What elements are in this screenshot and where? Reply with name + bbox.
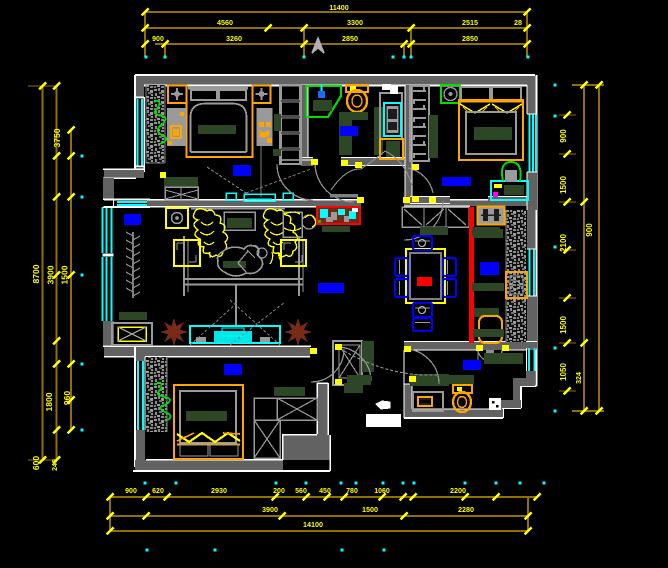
svg-text:900: 900 [559,129,568,143]
svg-text:28: 28 [514,18,522,27]
svg-text:560: 560 [295,488,307,495]
svg-text:3300: 3300 [347,18,363,27]
svg-text:2850: 2850 [462,34,478,43]
svg-text:14100: 14100 [303,520,323,529]
svg-text:1500: 1500 [559,176,568,194]
svg-text:1800: 1800 [44,392,54,411]
svg-text:8700: 8700 [31,264,41,283]
svg-text:600: 600 [31,456,41,470]
svg-text:2930: 2930 [211,486,227,495]
svg-text:240: 240 [52,459,59,471]
svg-text:2100: 2100 [559,234,568,252]
svg-text:324: 324 [576,372,583,384]
svg-text:3900: 3900 [262,505,278,514]
svg-text:2515: 2515 [462,18,478,27]
svg-text:620: 620 [152,488,164,495]
svg-text:780: 780 [346,488,358,495]
svg-text:900: 900 [125,488,137,495]
svg-text:3260: 3260 [226,34,242,43]
svg-text:900: 900 [152,36,164,43]
svg-text:450: 450 [319,488,331,495]
svg-text:960: 960 [62,391,72,405]
svg-text:1500: 1500 [559,316,568,334]
svg-text:1500: 1500 [60,265,70,284]
svg-text:1060: 1060 [374,488,390,495]
svg-text:1050: 1050 [559,363,568,381]
svg-text:2200: 2200 [450,486,466,495]
svg-text:900: 900 [585,223,594,237]
svg-text:200: 200 [273,488,285,495]
svg-text:2280: 2280 [458,505,474,514]
svg-text:11400: 11400 [329,3,349,12]
svg-text:4560: 4560 [217,18,233,27]
svg-text:3750: 3750 [52,128,62,147]
svg-text:2850: 2850 [342,34,358,43]
svg-text:3900: 3900 [46,265,56,284]
svg-text:1500: 1500 [362,505,378,514]
